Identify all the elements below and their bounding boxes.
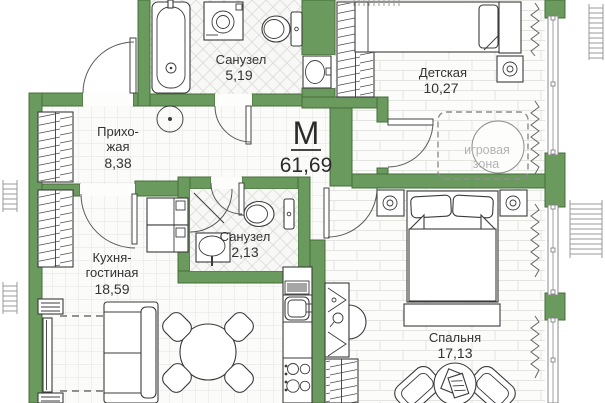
wall-entry-left (42, 93, 83, 106)
kitchen-door-leaf (132, 194, 137, 244)
toilet-tank (291, 12, 302, 46)
mark-left-upper (3, 180, 17, 212)
label-hall-line2: жая (107, 139, 130, 154)
stair-mark-right (570, 200, 602, 258)
floor-plan-svg: Санузел 5,19 Детская 10,27 Прихо- жая 8,… (0, 0, 605, 403)
tv-console-top (38, 299, 63, 314)
entry-door-leaf (130, 38, 136, 93)
label-bath1-name: Санузел (216, 52, 267, 67)
wall-kids-door-stub-top (377, 97, 388, 122)
wall-bath-top-left (138, 0, 150, 106)
pillow-right (452, 195, 493, 218)
wall-right-top (545, 0, 565, 18)
bath2-door-leaf (239, 183, 244, 215)
wall-kids-bedroom-divider (352, 174, 565, 188)
sofa-backrest (141, 307, 156, 398)
bath1-door-leaf (246, 106, 251, 144)
tv-console-bottom (38, 393, 63, 403)
mark-left-lower (3, 282, 17, 314)
label-bath1-area: 5,19 (225, 67, 252, 83)
toilet2-tank (284, 199, 294, 229)
entry-door-swing (83, 42, 134, 93)
floor-plan: Санузел 5,19 Детская 10,27 Прихо- жая 8,… (0, 0, 605, 403)
tv-screen (43, 318, 52, 392)
wall-right-mid (545, 153, 565, 207)
label-hall-line1: Прихо- (97, 124, 139, 139)
wall-right-low (545, 293, 565, 320)
bedroom-door-leaf (324, 188, 329, 238)
label-bedroom-area: 17,13 (437, 345, 472, 361)
label-kitchen-area: 18,59 (94, 281, 129, 297)
windows (548, 16, 558, 403)
entry-opening (83, 93, 133, 106)
wall-bath-top-bottom-b (252, 94, 303, 106)
label-unit: М (293, 115, 320, 151)
label-kids-area: 10,27 (423, 80, 458, 96)
bed-bench (404, 304, 500, 326)
bath2-door-opening (211, 177, 242, 189)
label-total-area: 61,69 (280, 154, 333, 177)
bedroom-nightstand-left (377, 190, 404, 216)
label-playzone-line1: игровая (464, 143, 510, 157)
bedroom-nightstand-right (500, 190, 527, 216)
cabinet-upper (147, 198, 188, 225)
pillow-left (411, 195, 452, 218)
childrens-headboard (499, 2, 521, 53)
stair-mark-top-right (589, 4, 603, 60)
label-hall-area: 8,38 (104, 155, 131, 171)
label-bath2-name: Санузел (220, 229, 271, 244)
childrens-nightstand (497, 56, 523, 82)
wall-corridor-top (302, 97, 378, 108)
bathtub-faucet (168, 0, 173, 8)
wall-bath-kids-divider-upper (302, 0, 335, 55)
label-playzone-line2: зона (473, 157, 499, 171)
washing-machine (204, 2, 243, 40)
childrens-bed (355, 2, 500, 52)
kitchen-door-opening (80, 184, 135, 196)
label-bath2-area: 2,13 (231, 244, 258, 260)
childrens-door-leaf (388, 119, 433, 125)
cabinet-lower (147, 225, 188, 252)
blanket (409, 229, 496, 301)
wall-corridor-kids (330, 108, 352, 186)
label-kids-name: Детская (419, 65, 467, 80)
childrens-pillow (479, 5, 498, 48)
wall-bath-top-bottom-a (150, 94, 215, 106)
label-bedroom-name: Спальня (429, 330, 481, 345)
label-kitchen-line1: Кухня- (92, 250, 131, 265)
label-kitchen-line2: гостиная (86, 265, 139, 280)
bath1-door-opening (215, 94, 252, 106)
